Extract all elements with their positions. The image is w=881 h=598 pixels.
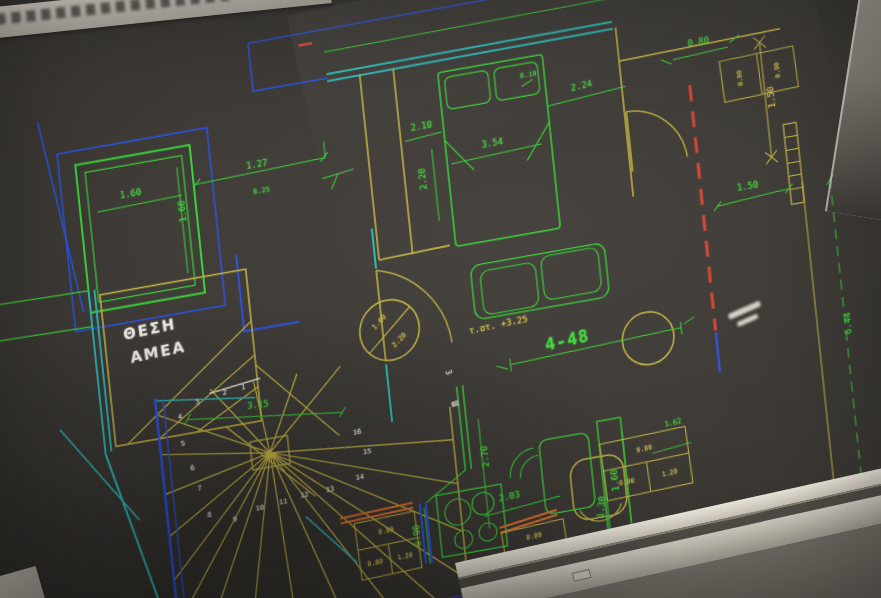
- tag-value: 0.80: [636, 443, 652, 454]
- tag-value: 0.80: [526, 531, 543, 542]
- dim-6-44: 6.44: [843, 312, 853, 335]
- stair-number: 8: [207, 511, 212, 519]
- stair-number: 1: [241, 385, 246, 393]
- stairs: [155, 346, 470, 598]
- bezel-port-detail: [572, 569, 592, 582]
- photo-frame: 1.27 0.25 1.60 1.60 2.10 2.20 3.54 0.10 …: [0, 0, 881, 598]
- tag-value: 0.80: [378, 525, 394, 536]
- stair-number: 4: [178, 414, 183, 422]
- sticker-illegible-text: [0, 0, 231, 25]
- tag-value: 0.80: [772, 62, 782, 79]
- stair-number: 16: [353, 428, 362, 436]
- stair-number: 5: [180, 441, 185, 449]
- tag-value: 0.80: [367, 557, 383, 568]
- stair-number: 3: [195, 400, 200, 408]
- stair-number: 13: [326, 486, 335, 494]
- stair-number: 9: [232, 516, 237, 524]
- outer-walls-top: [248, 0, 667, 94]
- stair-number: 10: [255, 504, 264, 512]
- stair-number: 6: [190, 465, 195, 473]
- stair-number: 7: [197, 485, 202, 493]
- tag-value: 0.80: [735, 69, 745, 86]
- tag-value: 0.80: [619, 476, 635, 487]
- stair-number: 15: [363, 448, 372, 456]
- stair-number: 12: [300, 491, 309, 499]
- stair-number: 2: [222, 390, 227, 398]
- stair-number: 14: [355, 473, 364, 481]
- tag-value: 1.20: [397, 550, 413, 561]
- dim-1-30: 1.30: [597, 496, 607, 518]
- stair-number: 11: [279, 498, 288, 506]
- tag-value: 1.20: [661, 467, 677, 478]
